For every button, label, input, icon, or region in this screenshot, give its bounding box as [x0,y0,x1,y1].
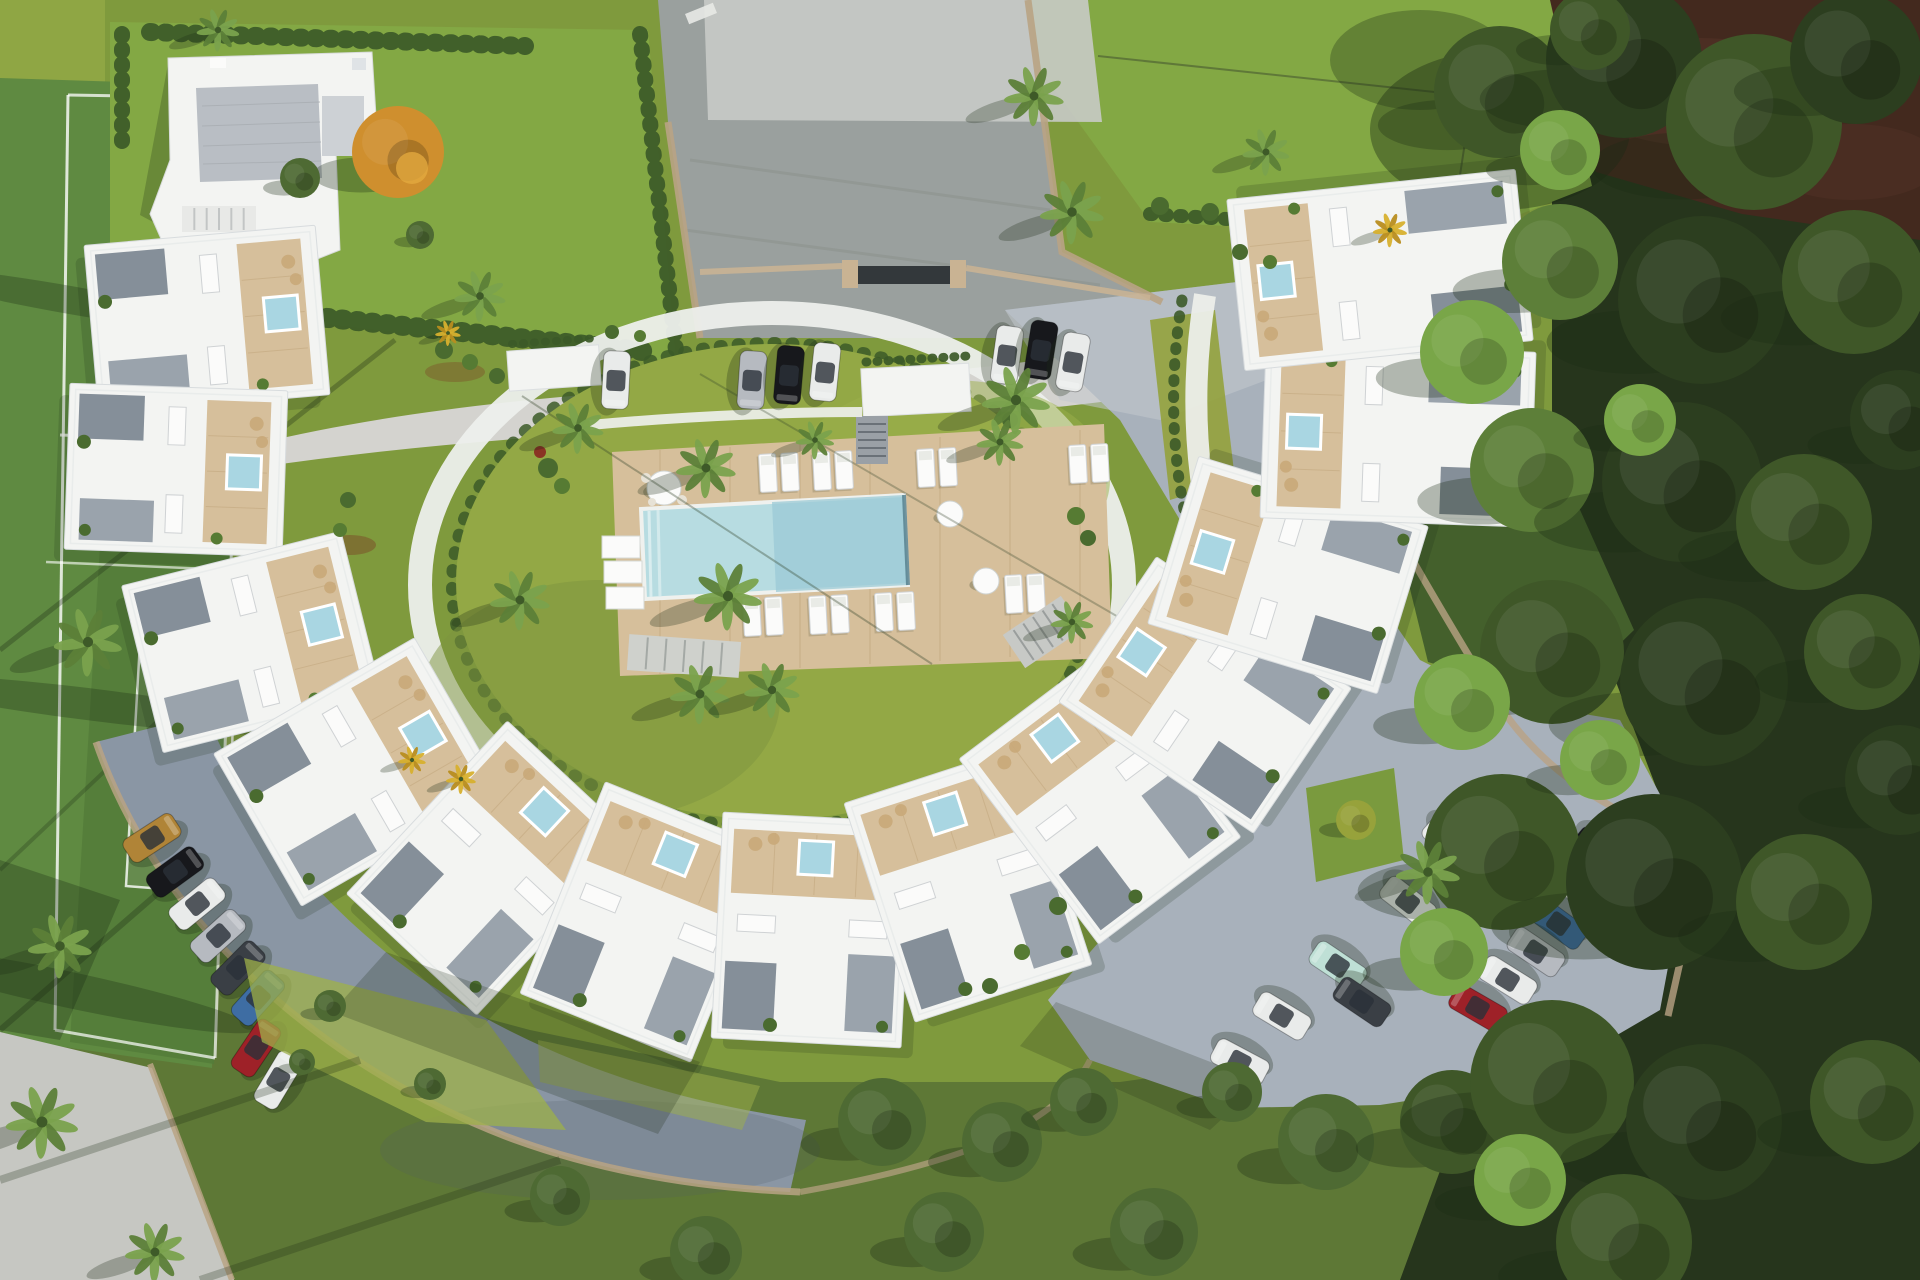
shrub [435,341,453,359]
gate-post [842,260,858,288]
pool-step [649,511,651,597]
shrub [333,523,347,537]
flower-bush [1067,507,1085,525]
villa-steps [182,206,256,232]
villa-detail [352,58,366,70]
flower-bush [554,478,570,494]
shrub [1151,197,1169,215]
shrub [340,492,356,508]
lounger [895,592,916,633]
pool-deep-end [772,495,908,592]
shrub [1049,897,1067,915]
aerial-3d-render [0,0,1920,1280]
shrub [489,368,505,384]
lounger [915,449,936,490]
lawn-pad [604,561,642,583]
lounger [1003,575,1024,616]
shrub [1232,244,1248,260]
shrub [1263,255,1277,269]
flower-bush [538,458,558,478]
shrub [605,325,619,339]
orange-tree-blob [396,152,428,184]
chair [648,498,656,506]
shrub [1201,203,1219,221]
flower-bush [1080,530,1096,546]
lounger [1067,445,1088,486]
gate-opening [858,266,950,284]
aerial-render-svg [0,0,1920,1280]
pool-step [658,510,660,597]
lawn-pad [602,536,640,558]
apartment-unit-2 [54,383,288,569]
lounger [1089,444,1110,485]
lounger [763,597,784,638]
shrub [634,330,646,342]
lounger [807,596,828,637]
entrance-steps [856,416,888,464]
gate-post [950,260,966,288]
lawn-pad [606,587,644,609]
shrub [982,978,998,994]
entrance-building [861,363,971,417]
lounger [779,453,800,494]
lounger [829,595,850,636]
villa-detail [210,58,226,68]
lounger [757,454,778,495]
shrub [1014,944,1030,960]
shrub [462,354,478,370]
road-side-building [507,345,602,391]
